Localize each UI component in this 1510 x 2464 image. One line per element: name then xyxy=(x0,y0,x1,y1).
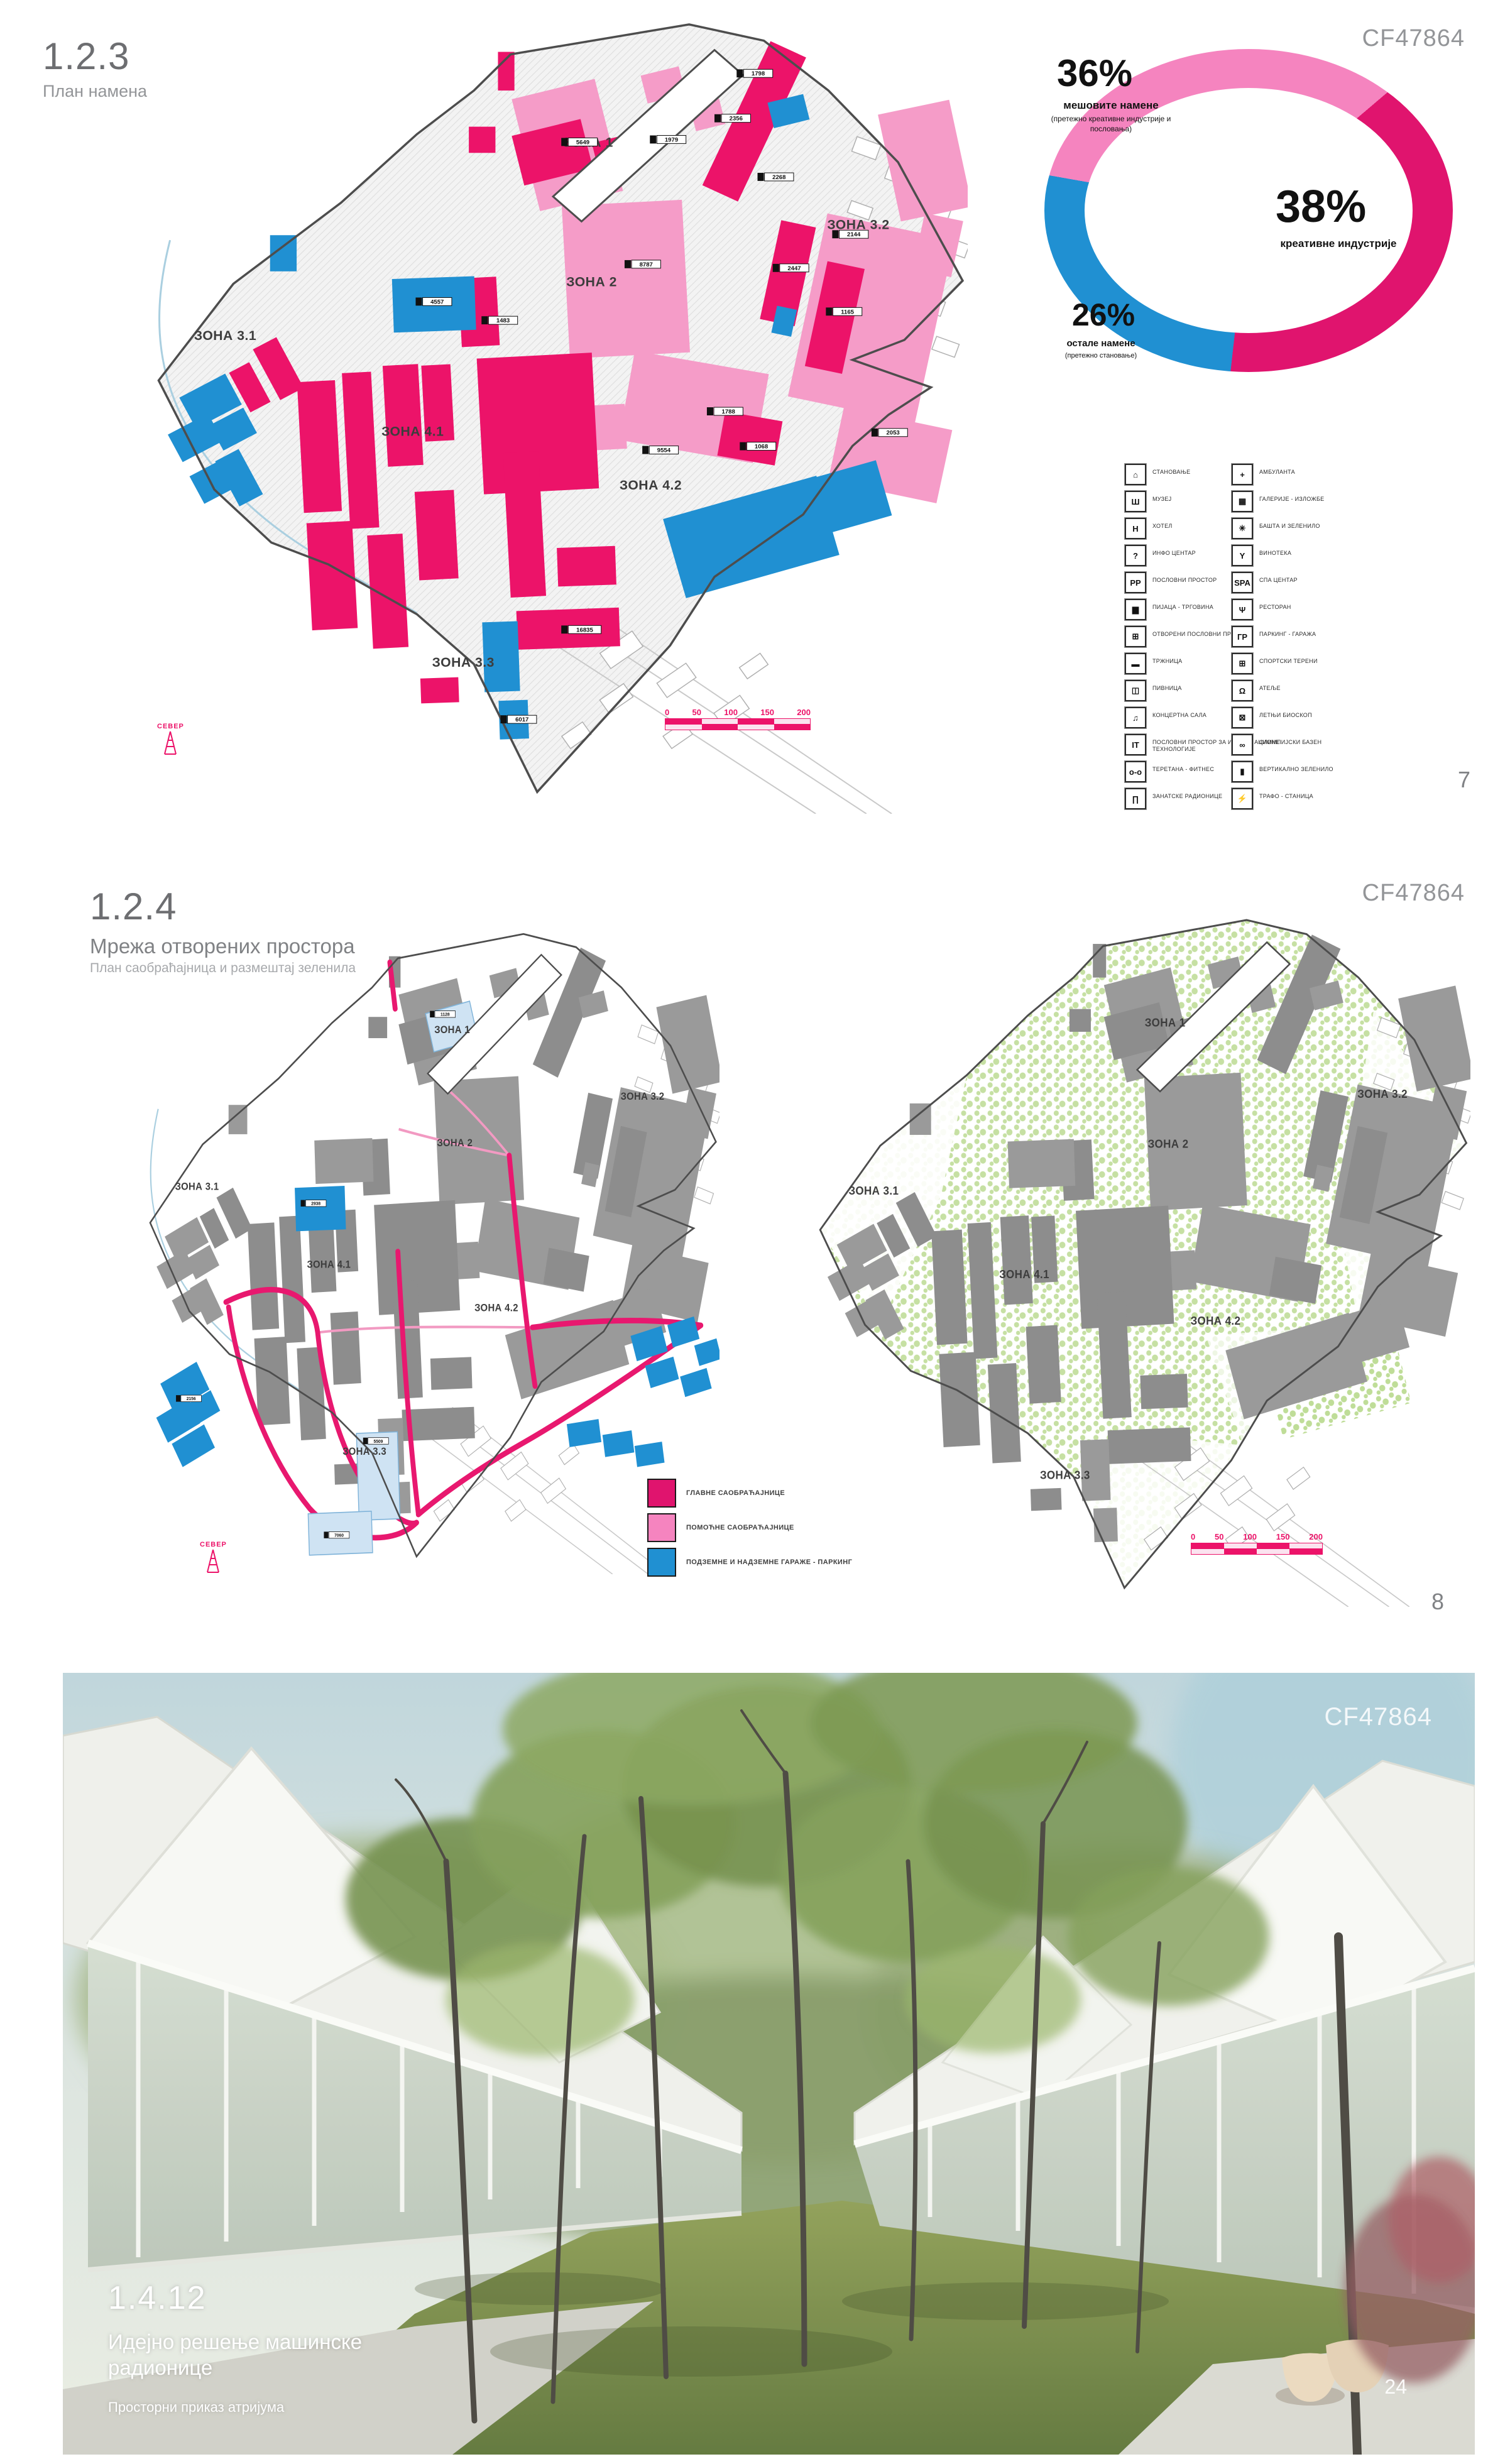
roads-legend: ГЛАВНЕ САОБРАЋАЈНИЦЕ ПОМОЋНЕ САОБРАЋАЈНИ… xyxy=(647,1479,852,1582)
zone-label: ЗОНА 3.2 xyxy=(1357,1088,1408,1101)
legend-item: SPA СПА ЦЕНТАР xyxy=(1232,572,1420,593)
legend-label: КОНЦЕРТНА САЛА xyxy=(1152,707,1206,719)
legend-label: ПИЈАЦА - ТРГОВИНА xyxy=(1152,599,1213,611)
legend-label: ЗАНАТСКЕ РАДИОНИЦЕ xyxy=(1152,788,1222,800)
legend-label: ГАЛЕРИЈЕ - ИЗЛОЖБЕ xyxy=(1259,491,1325,503)
legend-label: ОЛИМПИЈСКИ БАЗЕН xyxy=(1259,734,1321,746)
legend-label: ПОДЗЕМНЕ И НАДЗЕМНЕ ГАРАЖЕ - ПАРКИНГ xyxy=(686,1558,852,1566)
legend-label: ТРЖНИЦА xyxy=(1152,653,1182,665)
document-page: 1.2.3 План намена CF47864 ЗОНА 1 ЗОНА 2 … xyxy=(0,0,1510,2464)
legend-item: ГЛАВНЕ САОБРАЋАЈНИЦЕ xyxy=(647,1479,852,1508)
legend-item: + АМБУЛАНТА xyxy=(1232,464,1420,485)
north-label: СЕВЕР xyxy=(200,1541,227,1548)
section3-code: CF47864 xyxy=(1324,1703,1432,1731)
north-arrow-icon xyxy=(162,730,178,755)
pct-26: 26% xyxy=(1072,300,1135,331)
zone-label: ЗОНА 3.1 xyxy=(849,1184,899,1197)
legend-item: Ψ РЕСТОРАН xyxy=(1232,599,1420,620)
zone-label: ЗОНА 4.1 xyxy=(381,425,444,439)
legend-icon: о-о xyxy=(1125,761,1146,782)
legend-item: ПОМОЋНЕ САОБРАЋАЈНИЦЕ xyxy=(647,1513,852,1542)
scale-tick: 0 xyxy=(1191,1532,1195,1541)
scale-tick: 0 xyxy=(665,708,669,717)
legend-column-right: + АМБУЛАНТА ▦ ГАЛЕРИЈЕ - ИЗЛОЖБЕ ✳ БАШТА… xyxy=(1232,464,1420,809)
legend-icon: ∏ xyxy=(1125,788,1146,809)
pct-36-sub2: пословања) xyxy=(1023,124,1199,133)
legend-icon: ГР xyxy=(1232,626,1253,647)
pct-38: 38% xyxy=(1276,185,1366,228)
section3-title: Идејно решење машинске радионице xyxy=(108,2329,362,2381)
scale-tick: 200 xyxy=(797,708,811,717)
zone-label: ЗОНА 1 xyxy=(434,1024,470,1036)
zone-label: ЗОНА 4.1 xyxy=(999,1268,1049,1281)
legend-icon: ▮ xyxy=(1232,761,1253,782)
svg-text:2156: 2156 xyxy=(187,1396,196,1402)
svg-text:5509: 5509 xyxy=(373,1438,383,1444)
legend-label: ТЕРЕТАНА - ФИТНЕС xyxy=(1152,761,1214,773)
legend-label: АМБУЛАНТА xyxy=(1259,464,1295,476)
legend-icon: ⌂ xyxy=(1125,464,1146,485)
roads-map: ЗОНА 1 ЗОНА 2 ЗОНА 3.1 ЗОНА 3.2 ЗОНА 4.1… xyxy=(123,927,719,1574)
svg-text:4557: 4557 xyxy=(430,298,444,305)
legend-label: АТЕЉЕ xyxy=(1259,680,1281,692)
legend-icon: Ψ xyxy=(1232,599,1253,620)
garages-swatch xyxy=(647,1548,676,1577)
legend-item: ▦ ГАЛЕРИЈЕ - ИЗЛОЖБЕ xyxy=(1232,491,1420,512)
zone-label: ЗОНА 2 xyxy=(1148,1137,1189,1151)
zone-label: ЗОНА 4.2 xyxy=(474,1303,518,1314)
land-use-map: ЗОНА 1 ЗОНА 2 ЗОНА 3.1 ЗОНА 3.2 ЗОНА 4.1… xyxy=(119,16,968,814)
zone-label: ЗОНА 4.2 xyxy=(1191,1315,1241,1328)
legend-icon: Y xyxy=(1232,545,1253,566)
scale-tick: 150 xyxy=(760,708,774,717)
svg-text:9554: 9554 xyxy=(657,447,671,454)
svg-text:1979: 1979 xyxy=(665,136,678,143)
atrium-render: 1.4.12 Идејно решење машинске радионице … xyxy=(63,1673,1475,2455)
svg-text:1788: 1788 xyxy=(722,408,735,415)
legend-icon: ? xyxy=(1125,545,1146,566)
scale-tick: 50 xyxy=(692,708,701,717)
zone-label: ЗОНА 3.1 xyxy=(175,1181,219,1193)
legend-icon: ⚡ xyxy=(1232,788,1253,809)
legend-icon: ⊠ xyxy=(1232,707,1253,728)
page-number-8: 8 xyxy=(1431,1589,1444,1615)
legend-label: ПОСЛОВНИ ПРОСТОР xyxy=(1152,572,1217,584)
scale-bar: 0 50 100 150 200 xyxy=(665,708,811,730)
legend-label: ВЕРТИКАЛНО ЗЕЛЕНИЛО xyxy=(1259,761,1333,773)
svg-text:7060: 7060 xyxy=(334,1532,344,1538)
legend-label: СПОРТСКИ ТЕРЕНИ xyxy=(1259,653,1318,665)
zone-label: ЗОНА 3.3 xyxy=(432,655,495,670)
svg-text:16835: 16835 xyxy=(576,627,593,633)
legend-item: ✳ БАШТА И ЗЕЛЕНИЛО xyxy=(1232,518,1420,539)
legend-label: ПОМОЋНЕ САОБРАЋАЈНИЦЕ xyxy=(686,1524,794,1531)
legend-label: ВИНОТЕКА xyxy=(1259,545,1291,557)
legend-label: ПАРКИНГ - ГАРАЖА xyxy=(1259,626,1316,638)
legend-icon: + xyxy=(1232,464,1253,485)
legend-label: СПА ЦЕНТАР xyxy=(1259,572,1298,584)
legend-icon: ◫ xyxy=(1125,680,1146,701)
legend-icon: ▆ xyxy=(1125,599,1146,620)
zone-label: ЗОНА 3.3 xyxy=(1040,1469,1090,1482)
north-arrow-icon xyxy=(205,1548,221,1574)
section3-subtitle: Просторни приказ атријума xyxy=(108,2399,284,2416)
pct-26-label: остале намене xyxy=(1013,338,1189,349)
north-arrow: СЕВЕР xyxy=(157,723,184,757)
legend-item: ПОДЗЕМНЕ И НАДЗЕМНЕ ГАРАЖЕ - ПАРКИНГ xyxy=(647,1548,852,1577)
svg-text:1128: 1128 xyxy=(440,1011,450,1017)
svg-text:1165: 1165 xyxy=(841,309,854,315)
svg-text:1483: 1483 xyxy=(496,317,510,324)
scale-tick: 50 xyxy=(1215,1532,1223,1541)
legend-item: ГР ПАРКИНГ - ГАРАЖА xyxy=(1232,626,1420,647)
zone-label: ЗОНА 3.1 xyxy=(194,329,256,343)
pct-26-sub1: (претежно становање) xyxy=(1013,352,1189,360)
legend-icon: H xyxy=(1125,518,1146,539)
legend-icon: Ш xyxy=(1125,491,1146,512)
legend-icon: ⊞ xyxy=(1125,626,1146,647)
zone-label: ЗОНА 4.1 xyxy=(307,1259,351,1271)
legend-icon: ♫ xyxy=(1125,707,1146,728)
page-number-24: 24 xyxy=(1384,2375,1407,2399)
legend-icon: ▦ xyxy=(1232,491,1253,512)
section3-number: 1.4.12 xyxy=(108,2279,207,2317)
legend-icon: SPA xyxy=(1232,572,1253,593)
north-arrow: СЕВЕР xyxy=(200,1541,227,1575)
svg-text:1798: 1798 xyxy=(752,70,765,77)
legend-item: Ω АТЕЉЕ xyxy=(1232,680,1420,701)
legend-item: ∞ ОЛИМПИЈСКИ БАЗЕН xyxy=(1232,734,1420,755)
pct-36-sub1: (претежно креативне индустрије и xyxy=(1023,114,1199,123)
zone-label: ЗОНА 2 xyxy=(566,275,617,290)
svg-text:8787: 8787 xyxy=(640,261,653,268)
legend-label: ТРАФО - СТАНИЦА xyxy=(1259,788,1313,800)
legend-label: РЕСТОРАН xyxy=(1259,599,1291,611)
legend-label: ГЛАВНЕ САОБРАЋАЈНИЦЕ xyxy=(686,1489,785,1497)
north-label: СЕВЕР xyxy=(157,723,184,730)
pct-36: 36% xyxy=(1057,55,1132,91)
legend-item: ▮ ВЕРТИКАЛНО ЗЕЛЕНИЛО xyxy=(1232,761,1420,782)
legend-item: ⚡ ТРАФО - СТАНИЦА xyxy=(1232,788,1420,809)
svg-text:2938: 2938 xyxy=(311,1200,320,1207)
legend-icon: ✳ xyxy=(1232,518,1253,539)
legend-label: БАШТА И ЗЕЛЕНИЛО xyxy=(1259,518,1320,530)
svg-text:2447: 2447 xyxy=(787,265,801,272)
legend-label: ПИВНИЦА xyxy=(1152,680,1182,692)
svg-text:2356: 2356 xyxy=(730,116,743,123)
svg-text:2053: 2053 xyxy=(886,430,899,437)
legend-item: ⊠ ЛЕТЊИ БИОСКОП xyxy=(1232,707,1420,728)
legend-icon: Ω xyxy=(1232,680,1253,701)
scale-tick: 100 xyxy=(1243,1532,1257,1541)
scale-tick: 150 xyxy=(1276,1532,1290,1541)
greenery-map: ЗОНА 1 ЗОНА 2 ЗОНА 3.1 ЗОНА 3.2 ЗОНА 4.1… xyxy=(789,912,1470,1607)
pct-36-label: мешовите намене xyxy=(1023,99,1199,112)
legend-icon: IT xyxy=(1125,734,1146,755)
svg-text:6017: 6017 xyxy=(515,716,528,723)
zone-label: ЗОНА 2 xyxy=(437,1137,473,1149)
legend-icon: PP xyxy=(1125,572,1146,593)
section2-number: 1.2.4 xyxy=(90,885,356,928)
main-roads-swatch xyxy=(647,1479,676,1508)
legend-label: СТАНОВАЊЕ xyxy=(1152,464,1190,476)
zone-label: ЗОНА 3.3 xyxy=(342,1446,386,1457)
legend-icon: ▬ xyxy=(1125,653,1146,674)
svg-text:5649: 5649 xyxy=(576,139,589,146)
section2-code: CF47864 xyxy=(1362,880,1465,907)
zone-label: ЗОНА 4.2 xyxy=(620,478,682,493)
legend-icon: ⊞ xyxy=(1232,653,1253,674)
svg-text:2268: 2268 xyxy=(772,174,785,181)
legend-item: Y ВИНОТЕКА xyxy=(1232,545,1420,566)
legend-label: МУЗЕЈ xyxy=(1152,491,1171,503)
section3-title-line1: Идејно решење машинске xyxy=(108,2329,362,2355)
zone-label: ЗОНА 3.2 xyxy=(621,1091,665,1102)
legend-item: ⊞ СПОРТСКИ ТЕРЕНИ xyxy=(1232,653,1420,674)
svg-text:1068: 1068 xyxy=(755,444,768,451)
legend-label: ЛЕТЊИ БИОСКОП xyxy=(1259,707,1312,719)
scale-tick: 100 xyxy=(724,708,738,717)
section3-title-line2: радионице xyxy=(108,2355,362,2380)
scale-tick: 200 xyxy=(1309,1532,1323,1541)
svg-text:2144: 2144 xyxy=(847,231,861,238)
scale-bar: 0 50 100 150 200 xyxy=(1191,1532,1323,1555)
legend-icon: ∞ xyxy=(1232,734,1253,755)
pct-38-label: креативне индустрије xyxy=(1250,238,1426,250)
zone-label: ЗОНА 1 xyxy=(1145,1016,1186,1029)
section1-code: CF47864 xyxy=(1362,25,1465,52)
legend-label: ИНФО ЦЕНТАР xyxy=(1152,545,1196,557)
secondary-roads-swatch xyxy=(647,1513,676,1542)
legend-label: ХОТЕЛ xyxy=(1152,518,1173,530)
page-number-7: 7 xyxy=(1458,767,1470,793)
